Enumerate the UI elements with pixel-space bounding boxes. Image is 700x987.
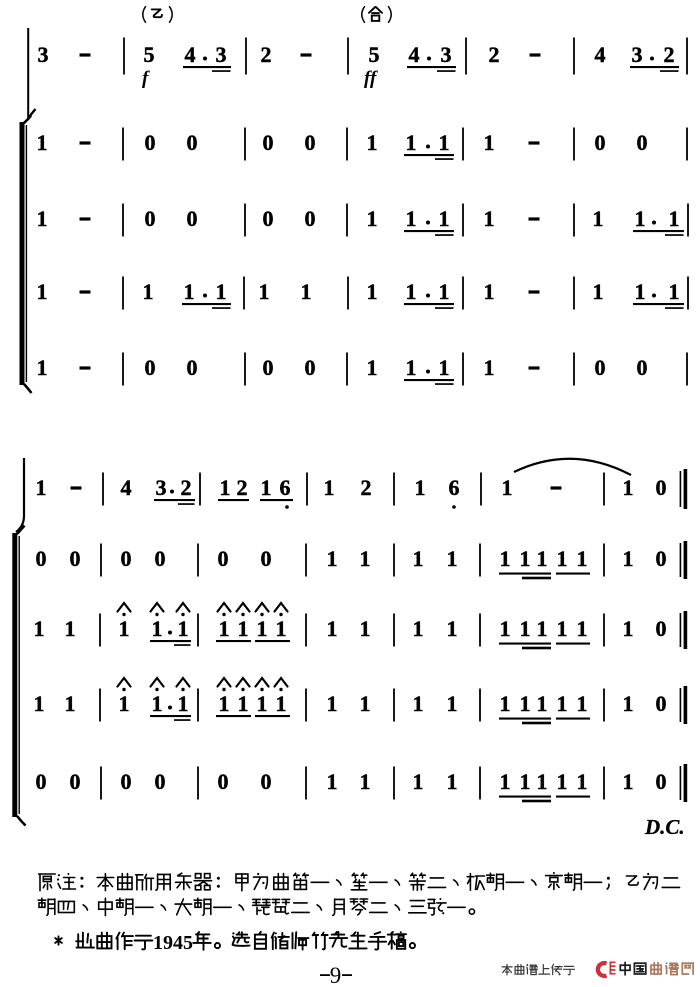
svg-text:1: 1 xyxy=(276,691,287,716)
svg-text:1: 1 xyxy=(367,279,378,304)
svg-text:1: 1 xyxy=(623,475,634,500)
svg-text:0: 0 xyxy=(261,546,272,571)
svg-text:0: 0 xyxy=(263,130,274,155)
svg-text:1: 1 xyxy=(119,616,130,641)
svg-text:1: 1 xyxy=(152,616,163,641)
svg-text:0: 0 xyxy=(121,769,132,794)
svg-text:1: 1 xyxy=(500,769,511,794)
svg-text:1: 1 xyxy=(577,616,588,641)
svg-text:0: 0 xyxy=(218,546,229,571)
svg-text:3: 3 xyxy=(38,42,49,67)
svg-text:0: 0 xyxy=(263,206,274,231)
svg-text:3: 3 xyxy=(216,42,227,67)
svg-text:1: 1 xyxy=(327,691,338,716)
svg-text:1: 1 xyxy=(537,769,548,794)
svg-text:6: 6 xyxy=(449,475,460,500)
svg-text:2: 2 xyxy=(489,42,500,67)
svg-text:1: 1 xyxy=(119,691,130,716)
svg-text:1: 1 xyxy=(413,691,424,716)
svg-text:1: 1 xyxy=(520,616,531,641)
svg-text:1: 1 xyxy=(143,279,154,304)
svg-text:0: 0 xyxy=(656,691,667,716)
svg-text:1: 1 xyxy=(557,769,568,794)
svg-text:1: 1 xyxy=(327,769,338,794)
svg-text:1: 1 xyxy=(413,546,424,571)
svg-text:1: 1 xyxy=(152,691,163,716)
svg-text:1: 1 xyxy=(537,546,548,571)
svg-text:1: 1 xyxy=(447,769,458,794)
svg-text:1: 1 xyxy=(37,355,48,380)
svg-text:1: 1 xyxy=(37,206,48,231)
svg-text:1: 1 xyxy=(577,769,588,794)
svg-text:1: 1 xyxy=(447,546,458,571)
svg-text:1: 1 xyxy=(415,475,426,500)
svg-text:0: 0 xyxy=(305,130,316,155)
svg-text:1: 1 xyxy=(537,691,548,716)
svg-text:1: 1 xyxy=(34,691,45,716)
svg-text:1: 1 xyxy=(367,355,378,380)
svg-text:1: 1 xyxy=(360,546,371,571)
svg-text:1: 1 xyxy=(447,691,458,716)
svg-text:1: 1 xyxy=(406,206,417,231)
svg-text:5: 5 xyxy=(369,42,380,67)
svg-text:0: 0 xyxy=(36,546,47,571)
svg-text:0: 0 xyxy=(595,130,606,155)
svg-text:1: 1 xyxy=(484,279,495,304)
svg-text:1: 1 xyxy=(669,206,680,231)
svg-text:1: 1 xyxy=(439,279,450,304)
svg-text:2: 2 xyxy=(361,475,372,500)
svg-text:4: 4 xyxy=(409,42,420,67)
svg-text:1: 1 xyxy=(37,130,48,155)
svg-text:4: 4 xyxy=(595,42,606,67)
svg-text:0: 0 xyxy=(145,130,156,155)
svg-text:1: 1 xyxy=(238,691,249,716)
svg-text:1: 1 xyxy=(367,130,378,155)
svg-text:1: 1 xyxy=(669,279,680,304)
svg-text:1: 1 xyxy=(216,279,227,304)
svg-text:1: 1 xyxy=(593,279,604,304)
svg-text:1: 1 xyxy=(178,616,189,641)
svg-text:1: 1 xyxy=(360,691,371,716)
svg-text:1: 1 xyxy=(65,691,76,716)
svg-text:1: 1 xyxy=(367,206,378,231)
svg-text:0: 0 xyxy=(656,616,667,641)
svg-text:0: 0 xyxy=(218,769,229,794)
svg-text:1: 1 xyxy=(484,206,495,231)
svg-text:0: 0 xyxy=(121,546,132,571)
svg-text:3: 3 xyxy=(156,475,167,500)
svg-text:1: 1 xyxy=(577,691,588,716)
svg-text:1: 1 xyxy=(219,691,230,716)
svg-text:1: 1 xyxy=(36,475,47,500)
svg-text:1: 1 xyxy=(257,691,268,716)
svg-text:1: 1 xyxy=(327,616,338,641)
svg-text:6: 6 xyxy=(280,475,291,500)
svg-text:0: 0 xyxy=(656,546,667,571)
svg-text:1: 1 xyxy=(261,475,272,500)
svg-text:2: 2 xyxy=(261,42,272,67)
svg-text:1: 1 xyxy=(413,769,424,794)
svg-text:1: 1 xyxy=(623,616,634,641)
svg-text:0: 0 xyxy=(36,769,47,794)
svg-text:1: 1 xyxy=(557,616,568,641)
svg-text:1: 1 xyxy=(406,355,417,380)
svg-text:1: 1 xyxy=(635,206,646,231)
svg-text:1: 1 xyxy=(447,616,458,641)
svg-text:1: 1 xyxy=(623,546,634,571)
svg-text:0: 0 xyxy=(261,769,272,794)
svg-text:1: 1 xyxy=(500,546,511,571)
svg-text:1: 1 xyxy=(557,546,568,571)
svg-text:0: 0 xyxy=(637,355,648,380)
svg-text:1: 1 xyxy=(220,475,231,500)
svg-text:1: 1 xyxy=(623,691,634,716)
svg-text:1: 1 xyxy=(301,279,312,304)
svg-text:2: 2 xyxy=(664,42,675,67)
svg-text:1: 1 xyxy=(360,616,371,641)
svg-text:1: 1 xyxy=(219,616,230,641)
svg-text:1945: 1945 xyxy=(153,932,193,954)
svg-text:0: 0 xyxy=(305,355,316,380)
svg-text:0: 0 xyxy=(155,546,166,571)
svg-text:3: 3 xyxy=(441,42,452,67)
svg-text:1: 1 xyxy=(537,616,548,641)
svg-text:0: 0 xyxy=(595,355,606,380)
svg-text:4: 4 xyxy=(121,475,132,500)
svg-text:f: f xyxy=(142,68,150,89)
svg-text:0: 0 xyxy=(70,769,81,794)
svg-text:1: 1 xyxy=(635,279,646,304)
svg-text:0: 0 xyxy=(145,355,156,380)
svg-text:0: 0 xyxy=(155,769,166,794)
svg-text:0: 0 xyxy=(187,206,198,231)
svg-text:1: 1 xyxy=(439,130,450,155)
svg-text:1: 1 xyxy=(623,769,634,794)
svg-text:1: 1 xyxy=(324,475,335,500)
svg-text:1: 1 xyxy=(184,279,195,304)
svg-text:D.C.: D.C. xyxy=(644,815,685,839)
svg-text:1: 1 xyxy=(327,546,338,571)
svg-text:1: 1 xyxy=(276,616,287,641)
svg-text:1: 1 xyxy=(439,355,450,380)
svg-text:3: 3 xyxy=(632,42,643,67)
svg-text:1: 1 xyxy=(593,206,604,231)
svg-text:1: 1 xyxy=(484,130,495,155)
svg-text:1: 1 xyxy=(577,546,588,571)
svg-text:1: 1 xyxy=(520,691,531,716)
svg-text:0: 0 xyxy=(187,355,198,380)
svg-text:5: 5 xyxy=(144,42,155,67)
svg-text:1: 1 xyxy=(34,616,45,641)
svg-text:1: 1 xyxy=(520,546,531,571)
svg-text:1: 1 xyxy=(439,206,450,231)
svg-text:1: 1 xyxy=(406,279,417,304)
svg-text:0: 0 xyxy=(263,355,274,380)
svg-text:1: 1 xyxy=(406,130,417,155)
svg-text:1: 1 xyxy=(484,355,495,380)
svg-text:ff: ff xyxy=(364,68,378,89)
svg-text:0: 0 xyxy=(145,206,156,231)
svg-text:1: 1 xyxy=(259,279,270,304)
svg-text:1: 1 xyxy=(65,616,76,641)
svg-text:1: 1 xyxy=(360,769,371,794)
svg-text:0: 0 xyxy=(187,130,198,155)
svg-text:1: 1 xyxy=(178,691,189,716)
svg-text:1: 1 xyxy=(502,475,513,500)
svg-text:2: 2 xyxy=(237,475,248,500)
svg-text:2: 2 xyxy=(181,475,192,500)
svg-text:4: 4 xyxy=(185,42,196,67)
svg-text:1: 1 xyxy=(500,616,511,641)
svg-text:1: 1 xyxy=(257,616,268,641)
svg-text:1: 1 xyxy=(500,691,511,716)
svg-text:0: 0 xyxy=(637,130,648,155)
svg-text:1: 1 xyxy=(413,616,424,641)
svg-text:0: 0 xyxy=(656,769,667,794)
svg-text:1: 1 xyxy=(238,616,249,641)
svg-text:1: 1 xyxy=(557,691,568,716)
svg-text:0: 0 xyxy=(656,475,667,500)
svg-text:0: 0 xyxy=(305,206,316,231)
svg-text:0: 0 xyxy=(70,546,81,571)
svg-text:1: 1 xyxy=(520,769,531,794)
svg-text:1: 1 xyxy=(37,279,48,304)
svg-text:9: 9 xyxy=(330,963,342,987)
